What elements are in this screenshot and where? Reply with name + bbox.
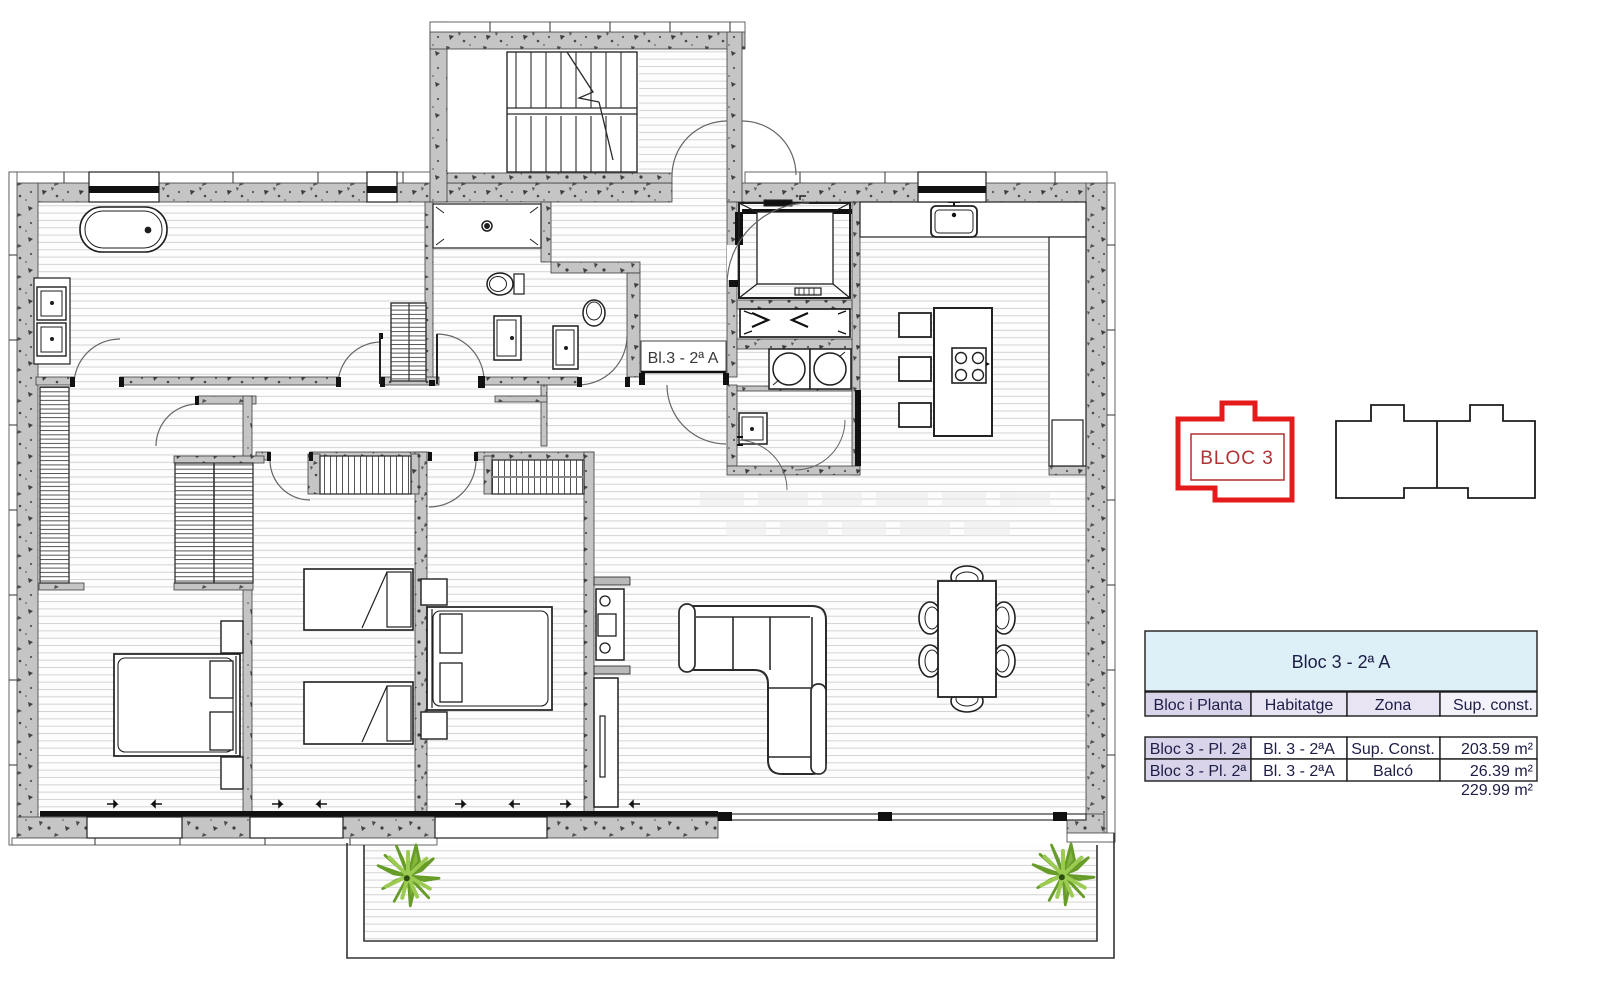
svg-text:Bloc 3 - Pl. 2ª: Bloc 3 - Pl. 2ª	[1150, 763, 1247, 780]
svg-text:Bl. 3 - 2ªA: Bl. 3 - 2ªA	[1263, 741, 1335, 758]
svg-text:26.39 m²: 26.39 m²	[1470, 763, 1534, 780]
svg-text:Zona: Zona	[1375, 697, 1412, 714]
svg-text:Balcó: Balcó	[1373, 763, 1413, 780]
svg-text:BLOC 3: BLOC 3	[1200, 448, 1274, 469]
svg-text:Bloc 3 - Pl. 2ª: Bloc 3 - Pl. 2ª	[1150, 741, 1247, 758]
svg-text:203.59 m²: 203.59 m²	[1461, 741, 1534, 758]
svg-text:Sup. Const.: Sup. Const.	[1351, 741, 1435, 758]
svg-text:Habitatge: Habitatge	[1265, 697, 1334, 714]
svg-text:Bl.3 - 2ª A: Bl.3 - 2ª A	[648, 350, 719, 367]
svg-text:Bloc 3 - 2ª A: Bloc 3 - 2ª A	[1292, 652, 1391, 672]
svg-text:Sup. const.: Sup. const.	[1453, 697, 1533, 714]
svg-text:Bloc i Planta: Bloc i Planta	[1154, 697, 1243, 714]
svg-text:229.99 m²: 229.99 m²	[1461, 782, 1534, 799]
svg-text:Bl. 3 - 2ªA: Bl. 3 - 2ªA	[1263, 763, 1335, 780]
